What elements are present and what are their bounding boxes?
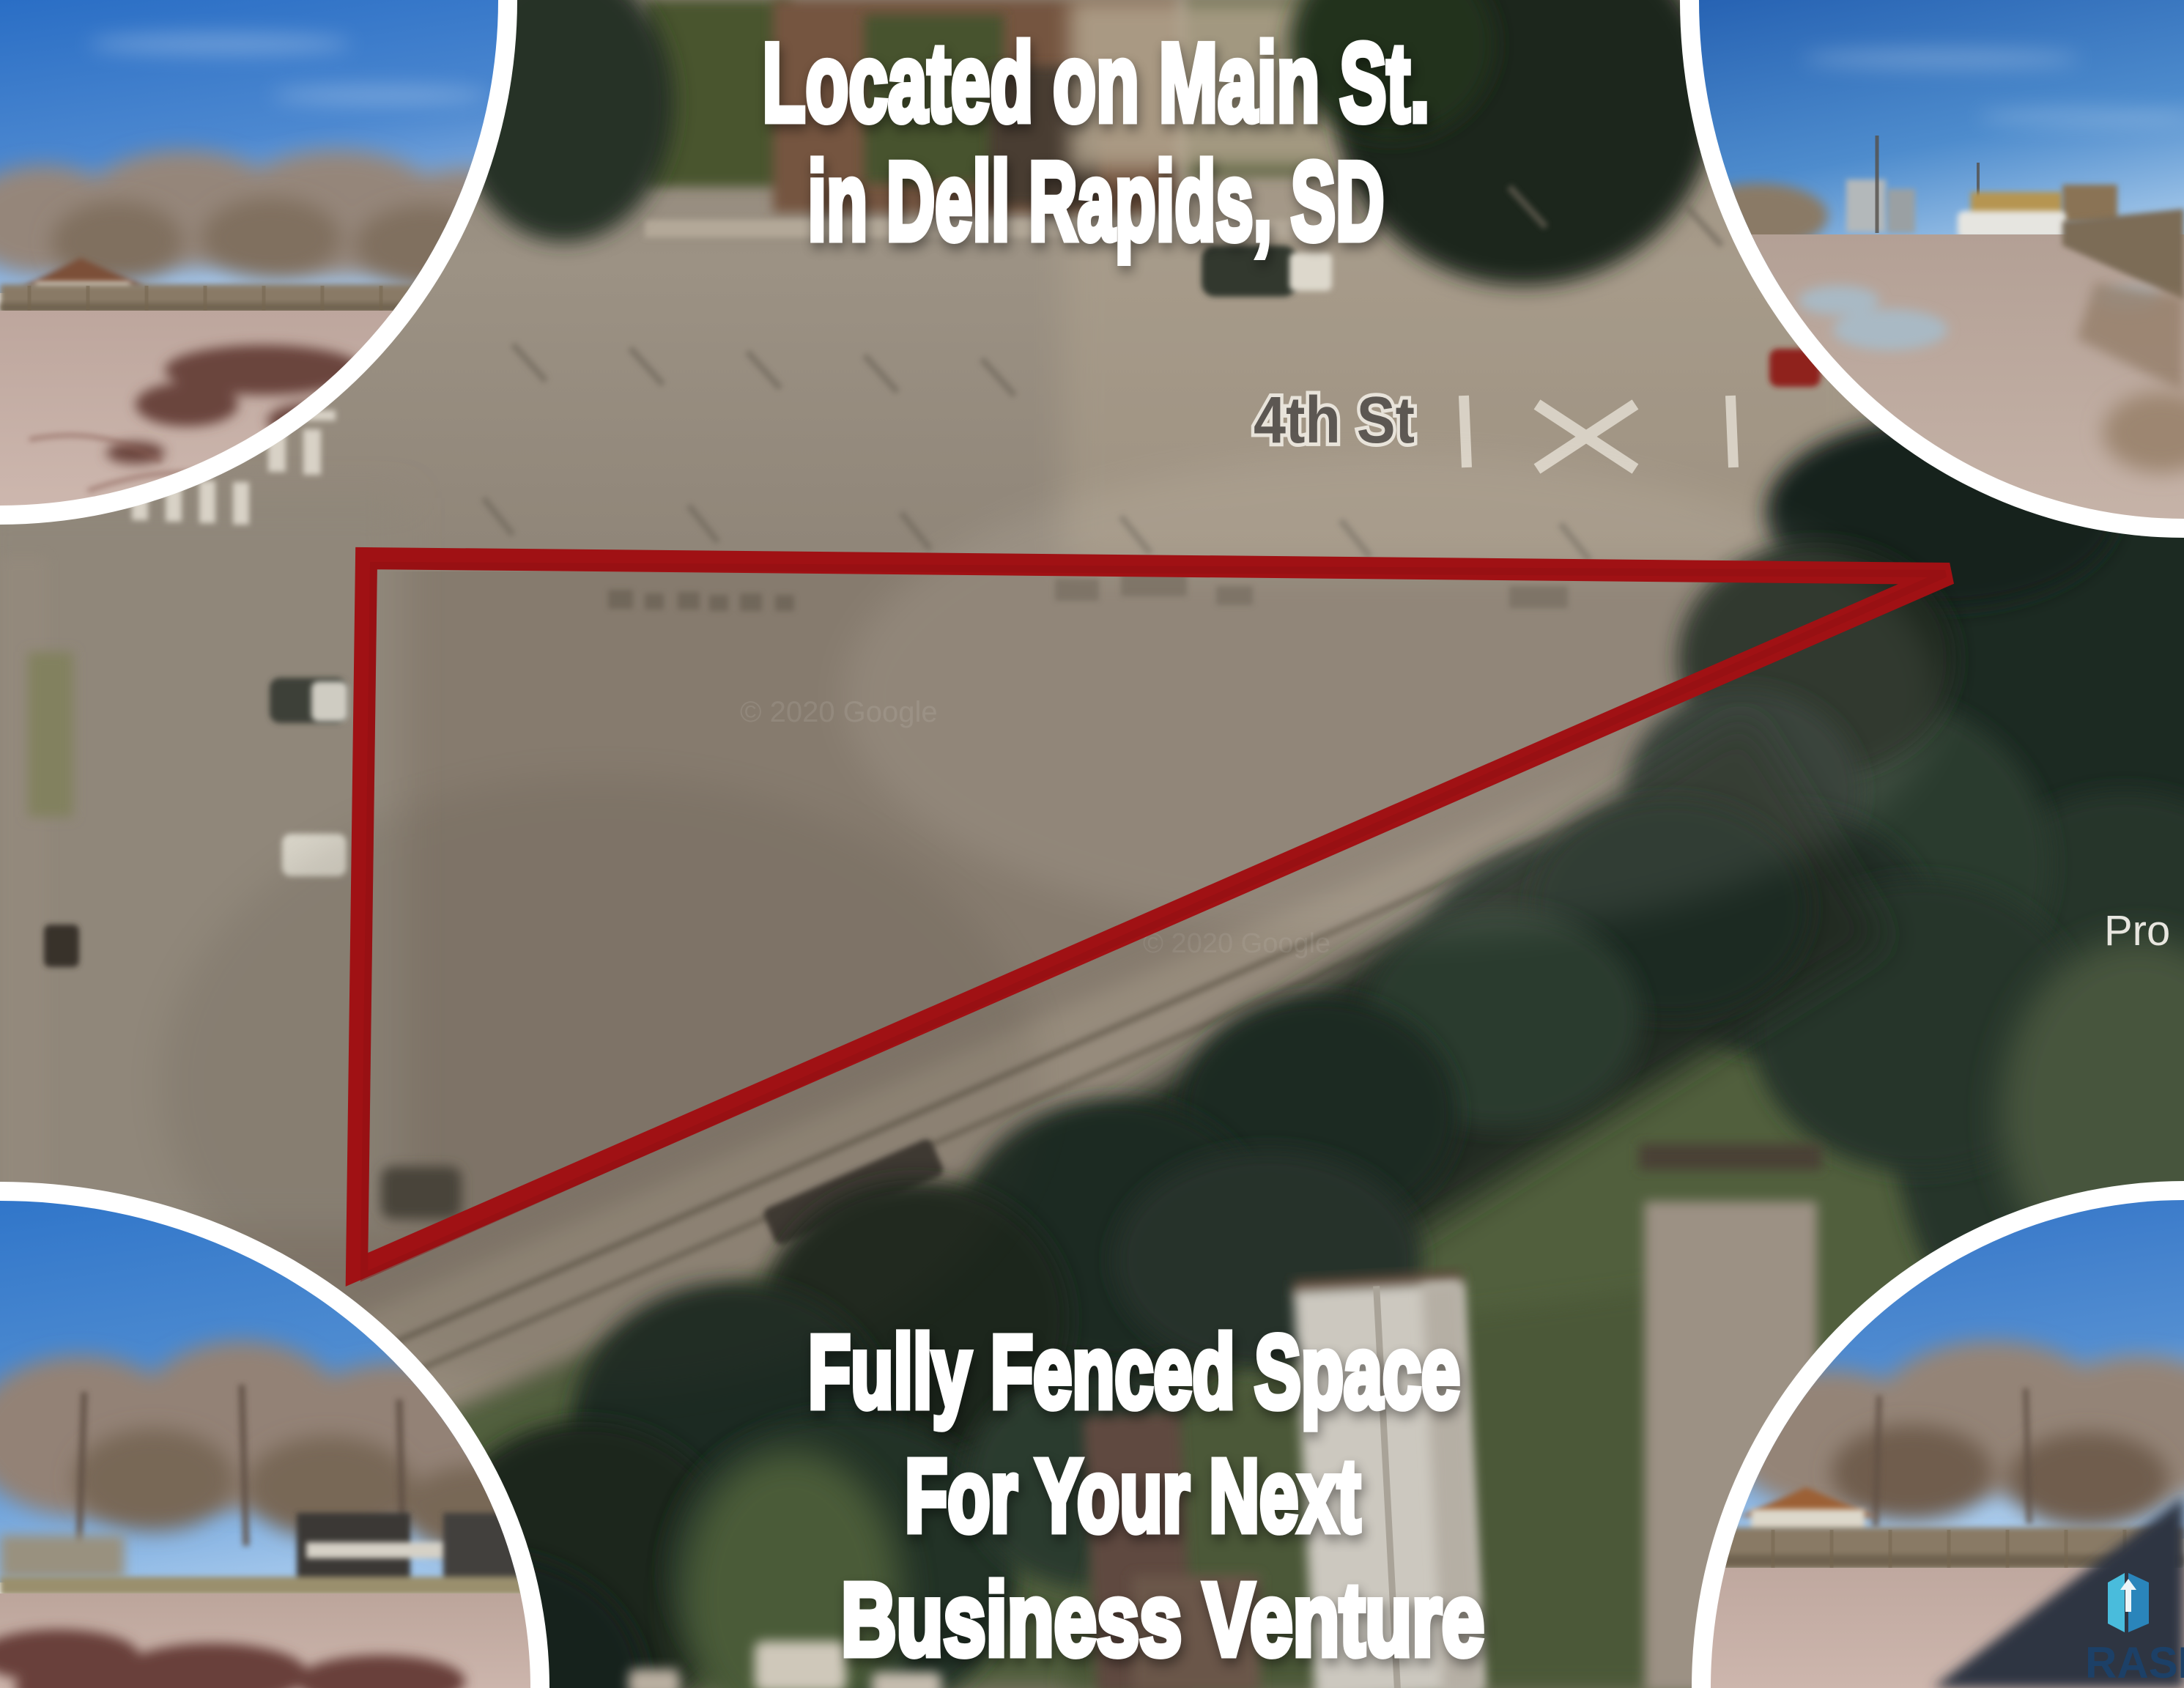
svg-text:Business Venture: Business Venture	[841, 1561, 1484, 1677]
svg-text:Fully Fenced Space: Fully Fenced Space	[808, 1314, 1460, 1429]
svg-text:For Your Next: For Your Next	[905, 1437, 1361, 1553]
svg-text:Pro: Pro	[2104, 907, 2170, 955]
svg-text:RASE: RASE	[2085, 1638, 2184, 1687]
svg-text:4th St: 4th St	[1254, 384, 1415, 457]
svg-text:in Dell Rapids, SD: in Dell Rapids, SD	[808, 139, 1385, 264]
svg-text:Located on Main St.: Located on Main St.	[763, 21, 1430, 145]
